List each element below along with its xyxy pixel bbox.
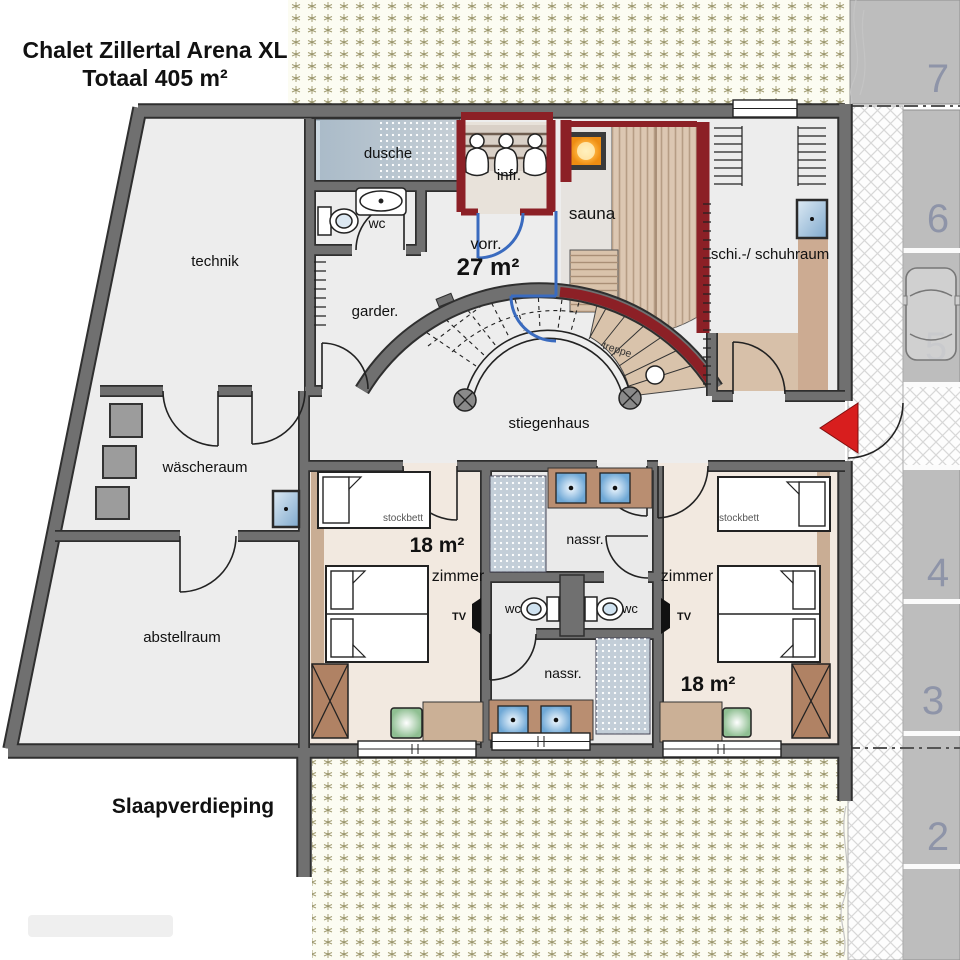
bunk-label-left: stockbett xyxy=(383,513,423,524)
room-label-wc-left: wc xyxy=(504,601,521,616)
room-label-vorr: vorr. xyxy=(470,236,501,253)
tv-label-left: TV xyxy=(452,611,467,623)
room-label-nassr-bottom: nassr. xyxy=(544,665,581,681)
area-label-bedroom-left: 18 m² xyxy=(410,534,465,557)
room-label-zimmer-left: zimmer xyxy=(432,568,485,585)
room-label-sauna: sauna xyxy=(569,204,616,223)
room-label-wc-right: wc xyxy=(621,601,638,616)
floorplan-page: 7 6 5 4 3 2 xyxy=(0,0,960,960)
watermark xyxy=(28,915,173,937)
tv-label-right: TV xyxy=(677,611,692,623)
area-label-bedroom-right: 18 m² xyxy=(681,673,736,696)
room-label-waescheraum: wäscheraum xyxy=(161,459,247,476)
bedroom-right-furniture xyxy=(718,477,830,662)
basin-icon xyxy=(391,708,422,738)
page-title-line1: Chalet Zillertal Arena XL xyxy=(23,37,288,63)
bedroom-left-furniture xyxy=(318,472,430,662)
parking-number-3: 3 xyxy=(922,679,944,723)
plumbing-wall xyxy=(560,575,584,636)
stair-newel xyxy=(646,366,664,384)
room-label-infr: infr. xyxy=(497,167,521,184)
room-label-skiroom: schi.-/ schuhraum xyxy=(711,246,829,263)
room-label-technik: technik xyxy=(191,253,239,270)
toilet-icon xyxy=(318,207,331,235)
garden-texture-top xyxy=(288,0,850,104)
floorplan-drawing: 7 6 5 4 3 2 xyxy=(0,0,960,960)
bunk-label-right: stockbett xyxy=(719,513,759,524)
garden-texture-bottom xyxy=(312,758,903,960)
driveway xyxy=(903,387,960,465)
tv-icon xyxy=(661,598,670,634)
room-label-garder: garder. xyxy=(352,303,399,320)
room-label-wc-top: wc xyxy=(367,215,385,231)
parking-number-2: 2 xyxy=(927,815,949,859)
room-label-abstellraum: abstellraum xyxy=(143,629,221,646)
room-label-zimmer-right: zimmer xyxy=(661,568,714,585)
basin-icon xyxy=(723,708,751,737)
toilet-icon xyxy=(585,597,597,621)
walkway xyxy=(848,106,903,960)
floor-label: Slaapverdieping xyxy=(112,795,274,818)
sauna-stove xyxy=(566,132,606,170)
counter xyxy=(660,702,722,742)
room-label-dusche: dusche xyxy=(364,145,412,162)
parking-number-7: 7 xyxy=(927,57,949,101)
toilet-icon xyxy=(547,597,559,621)
tv-icon xyxy=(472,598,481,634)
parking-number-4: 4 xyxy=(927,551,949,595)
parking-number-6: 6 xyxy=(927,197,949,241)
page-title-line2: Totaal 405 m² xyxy=(82,65,228,91)
room-label-stiegenhaus: stiegenhaus xyxy=(509,415,590,432)
room-label-nassr-top: nassr. xyxy=(566,531,603,547)
counter xyxy=(423,702,483,742)
area-label-vorr: 27 m² xyxy=(457,254,520,281)
parked-car xyxy=(902,268,960,360)
